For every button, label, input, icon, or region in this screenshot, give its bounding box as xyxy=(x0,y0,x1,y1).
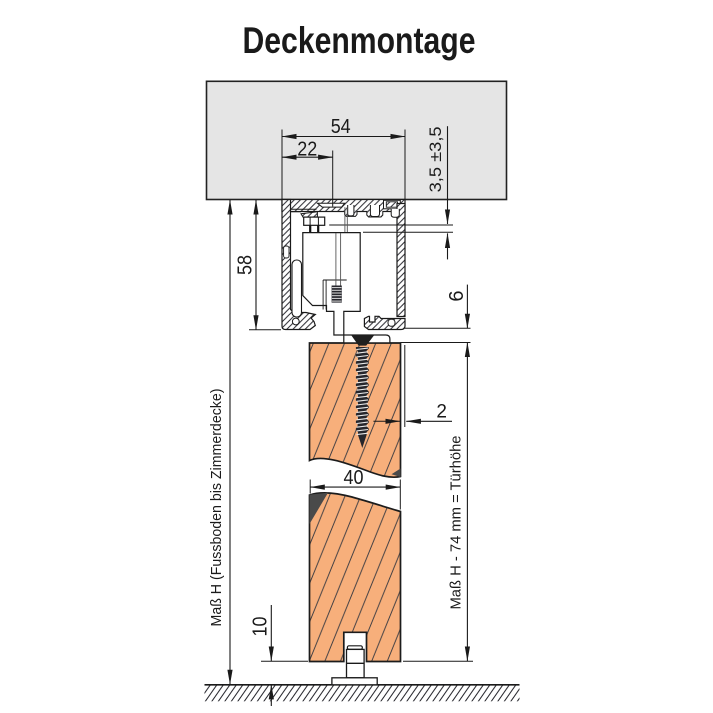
svg-text:6: 6 xyxy=(446,290,468,301)
svg-text:Deckenmontage: Deckenmontage xyxy=(243,20,476,61)
svg-text:22: 22 xyxy=(297,138,317,160)
svg-text:3,5 ±3,5: 3,5 ±3,5 xyxy=(426,126,445,192)
svg-text:2: 2 xyxy=(436,402,447,423)
svg-text:Maß H - 74 mm = Türhöhe: Maß H - 74 mm = Türhöhe xyxy=(448,436,465,610)
svg-text:40: 40 xyxy=(344,467,364,489)
svg-text:Maß H (Fussboden bis Zimmerdec: Maß H (Fussboden bis Zimmerdecke) xyxy=(208,388,225,626)
svg-text:54: 54 xyxy=(331,116,351,138)
svg-text:10: 10 xyxy=(250,617,272,637)
svg-text:58: 58 xyxy=(235,255,257,275)
